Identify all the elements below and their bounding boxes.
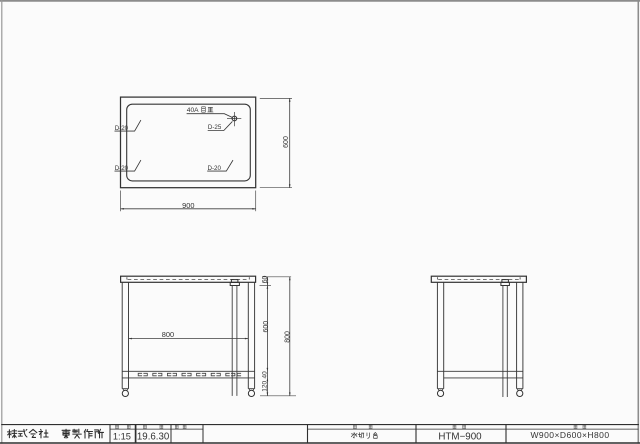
svg-text:120: 120 [262, 380, 269, 391]
svg-text:800: 800 [162, 330, 174, 339]
svg-text:HTM−900: HTM−900 [438, 431, 482, 442]
svg-text:60: 60 [262, 276, 269, 284]
svg-text:800: 800 [285, 331, 292, 343]
svg-text:1:15: 1:15 [113, 431, 131, 441]
svg-text:W900×D600×H800: W900×D600×H800 [530, 430, 609, 440]
svg-text:19.6.30: 19.6.30 [137, 431, 170, 442]
svg-text:600: 600 [283, 136, 290, 148]
svg-text:40A: 40A [187, 107, 199, 114]
svg-text:900: 900 [182, 201, 194, 210]
svg-text:600: 600 [263, 321, 270, 333]
svg-text:40: 40 [262, 371, 269, 379]
